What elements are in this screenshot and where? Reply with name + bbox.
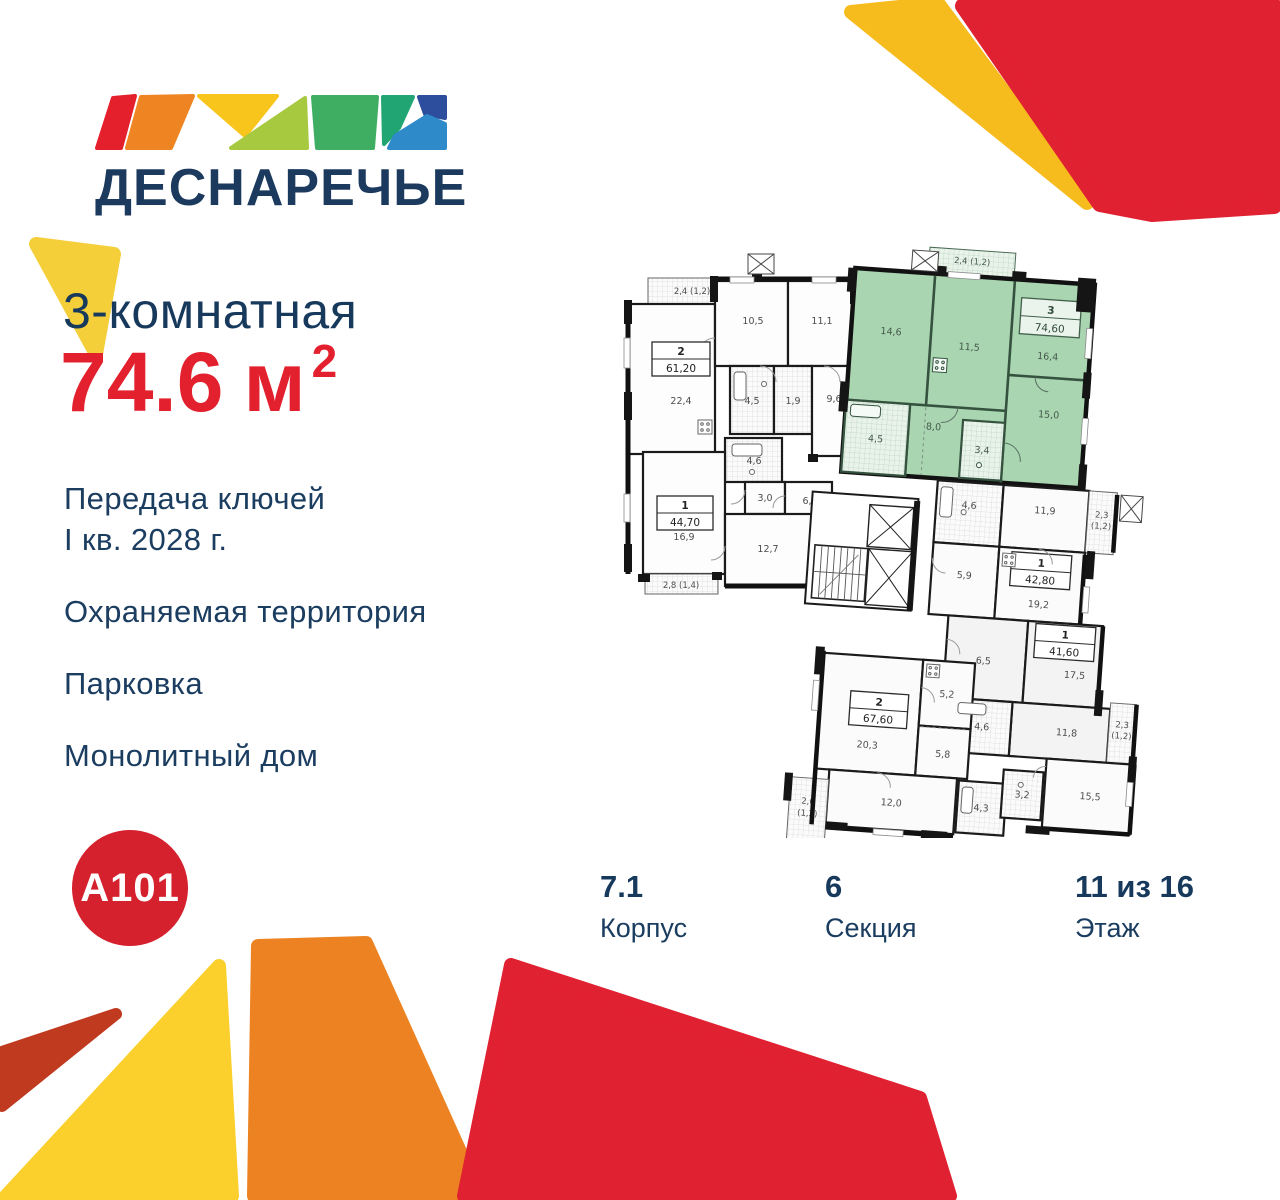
staircase <box>811 545 868 602</box>
floor-plan: 2,4 (1,2) 10,5 11,1 22,4 4,5 1,9 9,6 2 6… <box>612 246 1190 838</box>
room-label: 5,9 <box>956 570 972 582</box>
elevator-shafts <box>863 505 916 608</box>
offer-area-power: 2 <box>312 338 338 384</box>
room-label: 5,2 <box>939 689 955 701</box>
apartment-number: 1 <box>1061 629 1069 641</box>
feature-keys-line1: Передача ключей <box>64 478 427 519</box>
room-label: 16,4 <box>1037 351 1059 363</box>
shaft-icon <box>748 254 774 274</box>
room-label: 11,1 <box>811 316 832 327</box>
room-label: 3,2 <box>1014 789 1030 801</box>
offer-type-title: 3-комнатная <box>63 282 357 340</box>
apartment-area: 44,70 <box>670 517 700 529</box>
room-label: 17,5 <box>1064 670 1086 682</box>
apartment-74-tag: 3 74,60 <box>1019 298 1081 338</box>
room-label: 22,4 <box>670 396 691 407</box>
feature-security: Охраняемая территория <box>64 591 427 632</box>
feature-keys: Передача ключей I кв. 2028 г. <box>64 478 427 560</box>
offer-area-unit: м <box>244 335 306 429</box>
logo-mosaic-tiles <box>97 96 445 148</box>
apartment-number: 2 <box>875 697 883 709</box>
offer-area: 74.6м2 <box>60 340 337 424</box>
room-label: 3,4 <box>974 445 990 457</box>
room-label: 2,8 (1,4) <box>663 581 699 591</box>
apartment-area: 74,60 <box>1034 322 1065 336</box>
apartment-61-tag: 2 61,20 <box>652 342 710 376</box>
apartment-44-tag: 1 44,70 <box>657 496 713 530</box>
apartment-67-tag: 2 67,60 <box>849 691 909 729</box>
apartment-area: 41,60 <box>1049 645 1080 659</box>
room-label: (1,2) <box>1111 731 1132 742</box>
room-label: 8,0 <box>926 421 942 433</box>
decor-yellow-big-triangle <box>6 966 232 1196</box>
room-label: 11,9 <box>1034 505 1056 517</box>
room-label: 4,6 <box>746 456 761 467</box>
apartment-number: 2 <box>677 346 684 358</box>
room-label: 12,0 <box>880 797 902 809</box>
apartment-area: 42,80 <box>1025 574 1056 588</box>
floor-label: Этаж <box>1075 913 1194 944</box>
room-label: 11,8 <box>1056 727 1078 739</box>
detail-floor: 11 из 16 Этаж <box>1075 869 1194 944</box>
room-label: 11,5 <box>958 341 980 353</box>
feature-keys-line2: I кв. 2028 г. <box>64 519 427 560</box>
decor-top-right <box>851 3 1274 214</box>
room-label: 15,0 <box>1038 409 1060 421</box>
room-label: 16,9 <box>673 532 694 543</box>
detail-building: 7.1 Корпус <box>600 869 687 944</box>
apartment-74-highlighted: 2,4 (1,2) 14,6 11,5 16,4 15,0 8,0 4,5 3,… <box>841 246 1096 488</box>
detail-section: 6 Секция <box>825 869 917 944</box>
room-label: 4,5 <box>744 396 759 407</box>
apartment-area: 61,20 <box>666 363 696 375</box>
room-label: 2,4 (1,2) <box>674 287 710 297</box>
decor-red-corner <box>963 6 1274 214</box>
developer-name: A101 <box>80 866 180 911</box>
room-label: 15,5 <box>1079 791 1101 803</box>
room-label: 5,8 <box>935 749 951 761</box>
feature-building-type: Монолитный дом <box>64 735 427 776</box>
room-label: 14,6 <box>880 326 902 338</box>
room-label: (1,2) <box>1091 521 1112 532</box>
apartment-area: 67,60 <box>863 713 894 727</box>
room-label: 1,9 <box>785 396 800 407</box>
project-logo-mosaic <box>95 94 447 152</box>
room-label: 19,2 <box>1027 599 1049 611</box>
building-value: 7.1 <box>600 869 687 905</box>
room-label: 10,5 <box>742 316 763 327</box>
room-label: 12,7 <box>757 544 778 555</box>
developer-logo: A101 <box>72 830 188 946</box>
room-label: 6,5 <box>975 655 991 667</box>
decor-red-big-triangle <box>464 965 950 1196</box>
building-core <box>805 492 921 611</box>
decor-bottom-fan <box>2 943 950 1196</box>
section-label: Секция <box>825 913 917 944</box>
offer-area-value: 74.6 <box>60 335 224 429</box>
room-label: 2,3 <box>1095 510 1109 521</box>
decor-yellow-beam <box>851 3 1087 203</box>
floor-value: 11 из 16 <box>1075 869 1194 905</box>
section-value: 6 <box>825 869 917 905</box>
apartment-number: 1 <box>1037 557 1045 569</box>
feature-parking: Парковка <box>64 663 427 704</box>
project-name: ДЕСНАРЕЧЬЕ <box>95 158 467 218</box>
room-label: 2,3 <box>1115 720 1129 731</box>
apartment-41-tag: 1 41,60 <box>1034 624 1096 662</box>
room-label: 4,6 <box>974 721 990 733</box>
building-label: Корпус <box>600 913 687 944</box>
apartment-number: 1 <box>681 500 688 512</box>
decor-darkred-triangle <box>2 1014 116 1106</box>
room-label: 20,3 <box>856 739 878 751</box>
room-label: 4,5 <box>868 433 884 445</box>
feature-list: Передача ключей I кв. 2028 г. Охраняемая… <box>64 478 427 776</box>
room-label: 3,0 <box>757 493 772 504</box>
apartment-number: 3 <box>1047 305 1055 317</box>
decor-orange-shape <box>254 943 480 1196</box>
apartment-42-tag: 1 42,80 <box>1010 552 1072 590</box>
room-label: 4,3 <box>973 803 989 815</box>
